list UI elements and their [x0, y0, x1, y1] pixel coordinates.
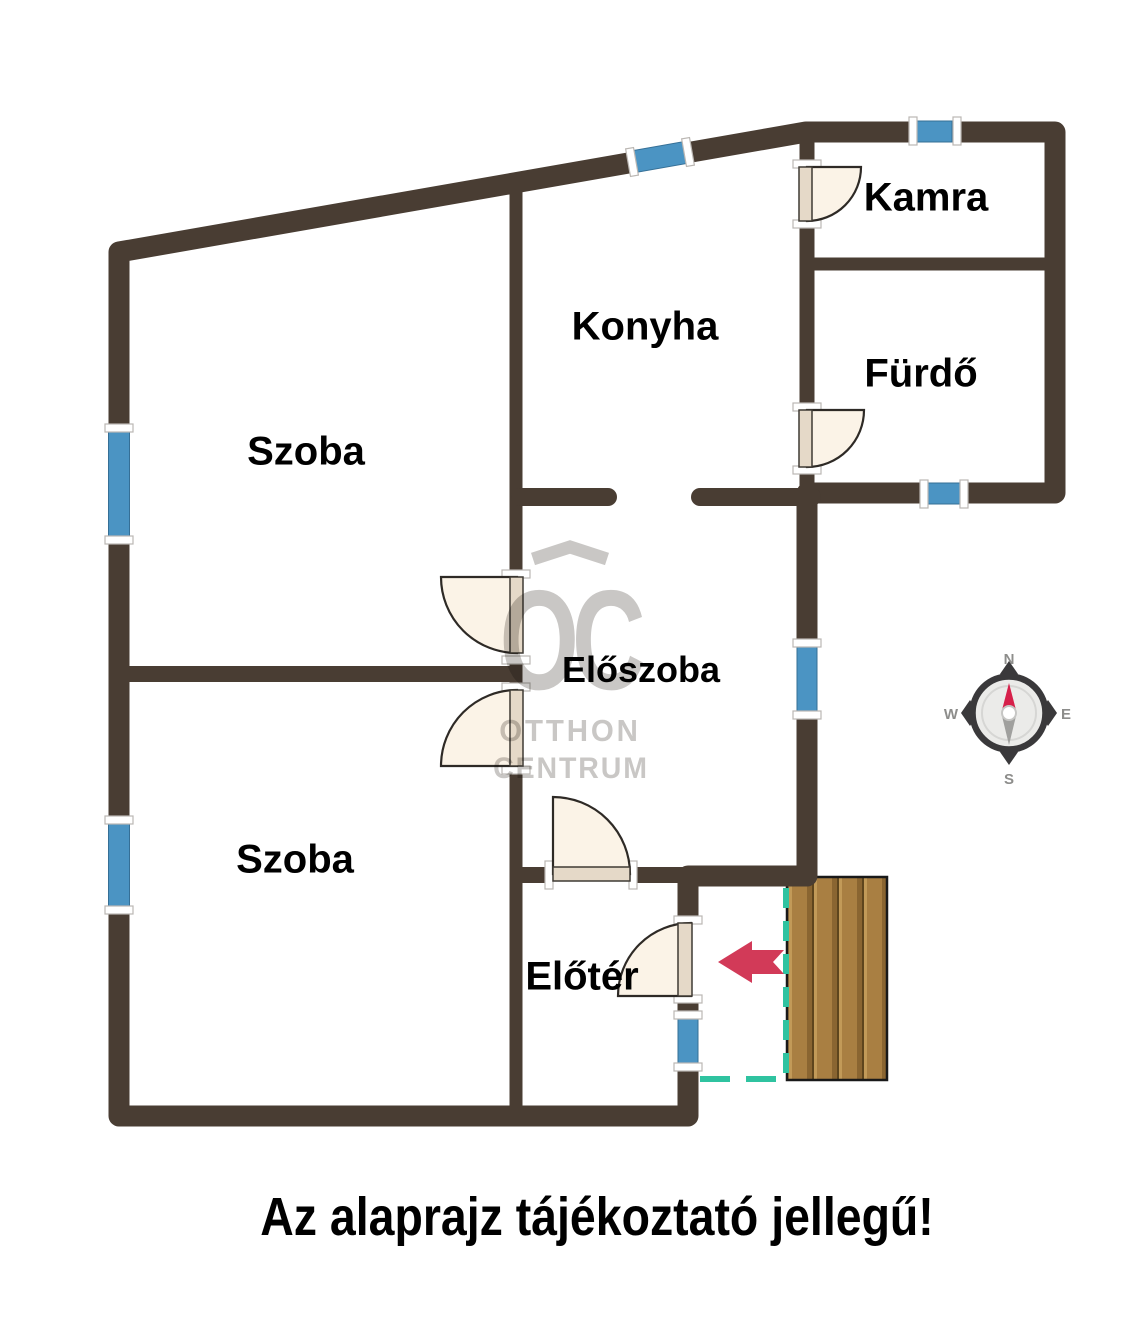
window-marker	[109, 822, 130, 908]
window-marker	[797, 646, 817, 712]
compass-cardinal-label: E	[1061, 706, 1071, 723]
room-label-eloter: Előtér	[525, 955, 638, 1000]
entrance-arrow-icon	[718, 941, 784, 983]
watermark-oc-monogram: OC	[500, 559, 639, 723]
frame-tick	[793, 639, 821, 647]
deck-plank-highlight	[789, 878, 792, 1079]
door	[799, 410, 864, 467]
floorplan-page: NESW OC OTTHON CENTRUM Kamra Konyha Fürd…	[0, 0, 1140, 1320]
room-label-kamra: Kamra	[864, 176, 989, 221]
room-label-szoba-lower: Szoba	[236, 838, 354, 883]
compass-cardinal-label: W	[944, 706, 959, 723]
compass-icon: NESW	[944, 651, 1071, 788]
room-label-konyha: Konyha	[572, 305, 719, 350]
compass-cardinal-label: N	[1004, 651, 1015, 668]
room-label-eloszoba: Előszoba	[562, 649, 720, 691]
frame-tick	[960, 480, 968, 508]
door-swing-arc	[807, 167, 861, 221]
window-marker	[109, 430, 130, 538]
room-label-furdo: Fürdő	[864, 352, 977, 397]
frame-tick	[674, 1011, 702, 1019]
compass-cardinal-label: S	[1004, 771, 1014, 788]
door	[553, 797, 630, 881]
deck-plank-seam	[812, 878, 814, 1079]
deck-plank-highlight	[839, 878, 842, 1079]
frame-tick	[793, 711, 821, 719]
deck-plank-highlight	[814, 878, 817, 1079]
frame-tick	[105, 816, 133, 824]
deck-plank-highlight	[864, 878, 867, 1079]
entrance-deck	[787, 877, 887, 1080]
disclaimer-text: Az alaprajz tájékoztató jellegű!	[260, 1186, 934, 1248]
deck-plank-seam	[862, 878, 864, 1079]
window-marker	[633, 142, 686, 172]
deck-plank-shade	[807, 878, 812, 1079]
frame-tick	[105, 906, 133, 914]
frame-tick	[105, 424, 133, 432]
compass-hub	[1002, 706, 1016, 720]
door-leaf	[799, 410, 812, 467]
watermark-roof-icon	[533, 547, 607, 559]
deck-plank-seam	[837, 878, 839, 1079]
window-marker	[678, 1018, 698, 1064]
frame-tick	[105, 536, 133, 544]
window-marker	[928, 483, 960, 504]
deck-plank-shade	[857, 878, 862, 1079]
frame-tick	[674, 1063, 702, 1071]
frame-tick	[953, 117, 961, 145]
door-leaf	[553, 867, 630, 881]
frame-tick	[545, 861, 553, 889]
door-leaf	[678, 923, 692, 996]
door-leaf	[799, 167, 812, 221]
watermark-centrum-text: CENTRUM	[493, 752, 649, 786]
frame-tick	[920, 480, 928, 508]
door-swing-arc	[807, 410, 864, 467]
deck-plank-shade	[832, 878, 837, 1079]
window-marker	[916, 121, 952, 142]
frame-tick	[909, 117, 917, 145]
room-label-szoba-upper: Szoba	[247, 430, 365, 475]
door	[799, 167, 861, 221]
watermark-otthon-text: OTTHON	[499, 713, 640, 749]
door-swing-arc	[553, 797, 630, 874]
